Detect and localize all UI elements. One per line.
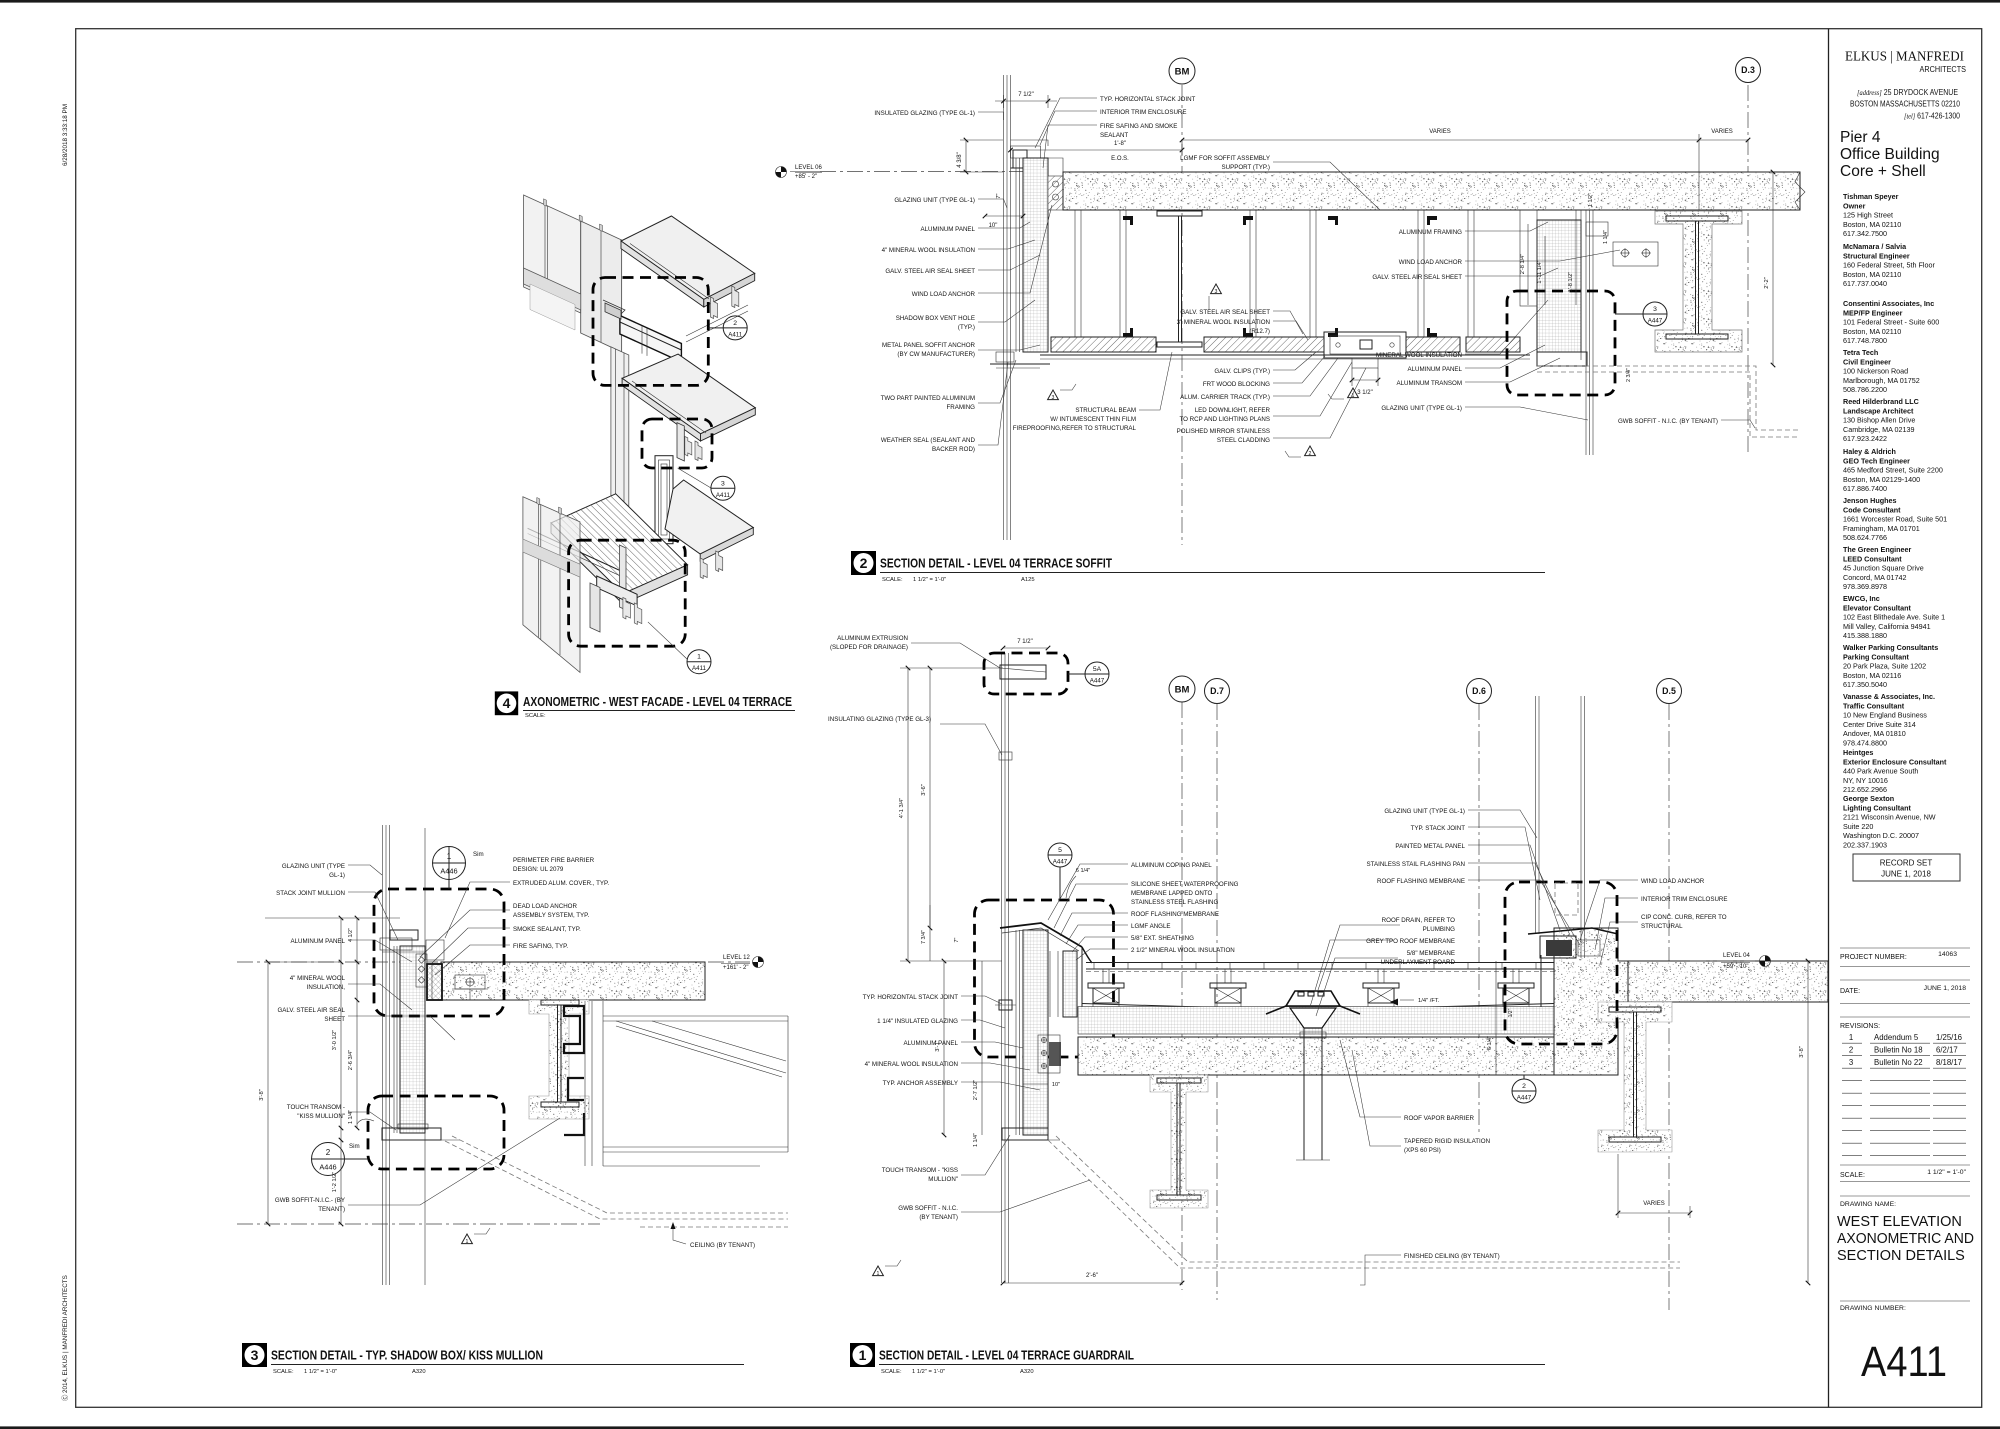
svg-text:George Sexton: George Sexton bbox=[1843, 794, 1894, 803]
svg-text:Bulletin No 22: Bulletin No 22 bbox=[1874, 1058, 1923, 1067]
svg-text:SEALANT: SEALANT bbox=[1100, 132, 1128, 139]
svg-text:3'-6": 3'-6" bbox=[921, 784, 927, 796]
svg-text:Boston, MA 02129-1400: Boston, MA 02129-1400 bbox=[1843, 475, 1920, 484]
svg-text:Suite 220: Suite 220 bbox=[1843, 822, 1873, 831]
svg-text:ELKUS | MANFREDI: ELKUS | MANFREDI bbox=[1845, 49, 1964, 64]
svg-text:SILICONE SHEET WATERPROOFING: SILICONE SHEET WATERPROOFING bbox=[1131, 881, 1239, 888]
svg-text:Elevator Consultant: Elevator Consultant bbox=[1843, 603, 1911, 612]
svg-text:440 Park Avenue South: 440 Park Avenue South bbox=[1843, 767, 1918, 776]
svg-text:Boston, MA 02110: Boston, MA 02110 bbox=[1843, 220, 1901, 229]
svg-text:Pier 4: Pier 4 bbox=[1840, 129, 1881, 146]
svg-text:1/4" /FT.: 1/4" /FT. bbox=[1418, 998, 1440, 1004]
svg-text:PERIMETER FIRE BARRIER: PERIMETER FIRE BARRIER bbox=[513, 857, 595, 864]
svg-text:Boston, MA 02110: Boston, MA 02110 bbox=[1843, 327, 1901, 336]
svg-text:GLAZING UNIT (TYPE GL-1): GLAZING UNIT (TYPE GL-1) bbox=[1384, 808, 1465, 815]
svg-text:978.474.8800: 978.474.8800 bbox=[1843, 739, 1887, 748]
svg-text:CEILING (BY TENANT): CEILING (BY TENANT) bbox=[690, 1242, 755, 1249]
svg-text:A320: A320 bbox=[1020, 1369, 1034, 1375]
svg-text:TO RCP AND LIGHTING PLANS: TO RCP AND LIGHTING PLANS bbox=[1179, 416, 1270, 423]
svg-text:FIRE SAFING, TYP.: FIRE SAFING, TYP. bbox=[513, 943, 568, 950]
svg-text:ROOF DRAIN, REFER TO: ROOF DRAIN, REFER TO bbox=[1382, 917, 1456, 924]
svg-text:VARIES: VARIES bbox=[1643, 1201, 1665, 1207]
svg-text:Sim: Sim bbox=[349, 1143, 360, 1150]
svg-text:LEVEL 12: LEVEL 12 bbox=[723, 955, 750, 961]
svg-text:6 1/4": 6 1/4" bbox=[1076, 868, 1090, 874]
svg-text:3'-8": 3'-8" bbox=[1799, 1046, 1805, 1058]
svg-text:RECORD SET: RECORD SET bbox=[1880, 859, 1933, 868]
svg-text:1661 Worcester Road, Suite 501: 1661 Worcester Road, Suite 501 bbox=[1843, 515, 1947, 524]
svg-text:2: 2 bbox=[1522, 1083, 1526, 1090]
svg-text:617.350.5040: 617.350.5040 bbox=[1843, 680, 1887, 689]
svg-text:SUPPORT (TYP.): SUPPORT (TYP.) bbox=[1222, 164, 1270, 171]
svg-text:125 High Street: 125 High Street bbox=[1843, 211, 1893, 220]
svg-text:1 1/2" = 1'-0": 1 1/2" = 1'-0" bbox=[1927, 1169, 1966, 1176]
svg-text:2'-8 1/4": 2'-8 1/4" bbox=[1520, 254, 1526, 274]
svg-text:7": 7" bbox=[954, 937, 960, 942]
svg-text:1 1/2" = 1'-0": 1 1/2" = 1'-0" bbox=[304, 1369, 337, 1375]
svg-text:3'-8": 3'-8" bbox=[259, 1089, 265, 1101]
svg-text:Heintges: Heintges bbox=[1843, 748, 1873, 757]
svg-text:1'-8": 1'-8" bbox=[1114, 141, 1126, 147]
svg-text:202.337.1903: 202.337.1903 bbox=[1843, 841, 1887, 850]
svg-text:(SLOPED FOR DRAINAGE): (SLOPED FOR DRAINAGE) bbox=[830, 644, 908, 651]
svg-text:FRAMING: FRAMING bbox=[946, 404, 975, 411]
svg-text:ALUMINUM COPING PANEL: ALUMINUM COPING PANEL bbox=[1131, 862, 1212, 869]
svg-text:1'-11 1/4": 1'-11 1/4" bbox=[1537, 260, 1543, 283]
svg-text:ALUMINUM PANEL: ALUMINUM PANEL bbox=[903, 1040, 958, 1047]
svg-text:STRUCTURAL BEAM: STRUCTURAL BEAM bbox=[1075, 407, 1136, 414]
svg-text:[address] 25 DRYDOCK AVENUE: [address] 25 DRYDOCK AVENUE bbox=[1857, 88, 1958, 97]
svg-text:Concord, MA 01742: Concord, MA 01742 bbox=[1843, 573, 1907, 582]
svg-text:160 Federal Street, 5th Floor: 160 Federal Street, 5th Floor bbox=[1843, 261, 1935, 270]
svg-text:4'-1 3/4": 4'-1 3/4" bbox=[899, 798, 905, 818]
svg-text:TAPERED RIGID INSULATION: TAPERED RIGID INSULATION bbox=[1404, 1138, 1490, 1145]
svg-text:"KISS MULLION": "KISS MULLION" bbox=[297, 1113, 345, 1120]
svg-text:3: 3 bbox=[1052, 395, 1055, 401]
svg-text:INSULATION,: INSULATION, bbox=[307, 984, 346, 991]
svg-text:SCALE:: SCALE: bbox=[1840, 1172, 1865, 1179]
svg-text:A446: A446 bbox=[319, 1163, 336, 1172]
svg-text:1: 1 bbox=[466, 1239, 469, 1245]
svg-text:2'-7 1/2": 2'-7 1/2" bbox=[973, 1080, 979, 1100]
svg-text:102 East Blithedale Ave. Suite: 102 East Blithedale Ave. Suite 1 bbox=[1843, 613, 1945, 622]
svg-text:PROJECT NUMBER:: PROJECT NUMBER: bbox=[1840, 954, 1907, 961]
svg-text:2 1/2" MINERAL WOOL INSULATION: 2 1/2" MINERAL WOOL INSULATION bbox=[1131, 947, 1235, 954]
svg-text:3 1/2": 3 1/2" bbox=[1357, 390, 1372, 396]
svg-text:1/2": 1/2" bbox=[1508, 1008, 1514, 1017]
svg-text:ASSEMBLY SYSTEM, TYP.: ASSEMBLY SYSTEM, TYP. bbox=[513, 912, 590, 919]
svg-text:WIND LOAD ANCHOR: WIND LOAD ANCHOR bbox=[1399, 259, 1463, 266]
svg-text:FRT WOOD BLOCKING: FRT WOOD BLOCKING bbox=[1203, 381, 1270, 388]
svg-text:SECTION DETAIL - LEVEL 04 TERR: SECTION DETAIL - LEVEL 04 TERRACE SOFFIT bbox=[880, 556, 1112, 571]
svg-text:A411: A411 bbox=[716, 492, 731, 499]
svg-text:LEED Consultant: LEED Consultant bbox=[1843, 554, 1902, 563]
svg-text:415.388.1880: 415.388.1880 bbox=[1843, 631, 1887, 640]
svg-text:ALUMINUM FRAMING: ALUMINUM FRAMING bbox=[1399, 229, 1462, 236]
svg-text:TYP. ANCHOR ASSEMBLY: TYP. ANCHOR ASSEMBLY bbox=[883, 1080, 958, 1087]
svg-text:+59' - 10": +59' - 10" bbox=[1723, 964, 1748, 970]
svg-text:TYP. STACK JOINT: TYP. STACK JOINT bbox=[1411, 825, 1466, 832]
svg-text:A447: A447 bbox=[1517, 1095, 1532, 1102]
svg-text:SECTION DETAIL - LEVEL 04 TERR: SECTION DETAIL - LEVEL 04 TERRACE GUARDR… bbox=[879, 1348, 1134, 1363]
svg-text:GALV. CLIPS (TYP.): GALV. CLIPS (TYP.) bbox=[1214, 368, 1270, 375]
svg-text:3: 3 bbox=[251, 1347, 259, 1363]
svg-text:Office Building: Office Building bbox=[1840, 146, 1940, 163]
svg-text:Landscape Architect: Landscape Architect bbox=[1843, 406, 1914, 415]
svg-text:Structural Engineer: Structural Engineer bbox=[1843, 251, 1910, 260]
svg-text:GEO Tech Engineer: GEO Tech Engineer bbox=[1843, 456, 1910, 465]
svg-text:TYP. HORIZONTAL STACK JOINT: TYP. HORIZONTAL STACK JOINT bbox=[1100, 96, 1196, 103]
svg-text:GALV. STEEL AIR SEAL: GALV. STEEL AIR SEAL bbox=[277, 1007, 345, 1014]
svg-text:SMOKE SEALANT, TYP.: SMOKE SEALANT, TYP. bbox=[513, 926, 581, 933]
svg-text:INSULATED GLAZING (TYPE GL-1): INSULATED GLAZING (TYPE GL-1) bbox=[874, 110, 975, 117]
svg-text:GLAZING UNIT (TYPE GL-1): GLAZING UNIT (TYPE GL-1) bbox=[894, 197, 975, 204]
svg-text:ALUMINUM TRANSOM: ALUMINUM TRANSOM bbox=[1396, 380, 1462, 387]
svg-text:Andover, MA 01810: Andover, MA 01810 bbox=[1843, 729, 1906, 738]
svg-text:978.369.8978: 978.369.8978 bbox=[1843, 582, 1887, 591]
svg-text:FIRE SAFING AND SMOKE: FIRE SAFING AND SMOKE bbox=[1100, 123, 1177, 130]
svg-text:TWO PART PAINTED ALUMINUM: TWO PART PAINTED ALUMINUM bbox=[881, 395, 975, 402]
svg-text:BOSTON MASSACHUSETTS 02210: BOSTON MASSACHUSETTS 02210 bbox=[1850, 100, 1961, 109]
svg-text:Parking Consultant: Parking Consultant bbox=[1843, 652, 1909, 661]
svg-text:ALUM. CARRIER TRACK (TYP.): ALUM. CARRIER TRACK (TYP.) bbox=[1180, 394, 1270, 401]
svg-text:MULLION": MULLION" bbox=[928, 1176, 958, 1183]
svg-text:5: 5 bbox=[1058, 847, 1062, 854]
svg-text:TYP. HORIZONTAL STACK JOINT: TYP. HORIZONTAL STACK JOINT bbox=[863, 994, 959, 1001]
svg-text:+161' - 2": +161' - 2" bbox=[723, 965, 748, 971]
svg-text:[tel] 617-426-1300: [tel] 617-426-1300 bbox=[1904, 111, 1961, 120]
svg-text:(XPS 60 PSI): (XPS 60 PSI) bbox=[1404, 1147, 1441, 1154]
svg-text:2: 2 bbox=[1849, 1046, 1853, 1055]
svg-text:3" MINERAL WOOL INSULATION: 3" MINERAL WOOL INSULATION bbox=[1177, 319, 1270, 326]
svg-text:PAINTED METAL PANEL: PAINTED METAL PANEL bbox=[1395, 843, 1465, 850]
svg-text:A125: A125 bbox=[1021, 577, 1035, 583]
svg-text:D.3: D.3 bbox=[1741, 65, 1755, 75]
svg-text:465 Medford Street, Suite 2200: 465 Medford Street, Suite 2200 bbox=[1843, 466, 1943, 475]
svg-text:1'-8 1/2": 1'-8 1/2" bbox=[1568, 272, 1574, 292]
svg-text:D.5: D.5 bbox=[1662, 686, 1676, 696]
svg-text:SCALE:: SCALE: bbox=[881, 1369, 902, 1375]
svg-text:2: 2 bbox=[733, 320, 737, 327]
svg-text:ALUMINUM EXTRUSION: ALUMINUM EXTRUSION bbox=[837, 635, 908, 642]
svg-text:JUNE 1, 2018: JUNE 1, 2018 bbox=[1881, 870, 1931, 879]
svg-text:LGMF ANGLE: LGMF ANGLE bbox=[1131, 923, 1171, 930]
svg-text:D.7: D.7 bbox=[1210, 686, 1224, 696]
svg-text:The Green Engineer: The Green Engineer bbox=[1843, 545, 1912, 554]
svg-text:FINISHED CEILING (BY TENANT): FINISHED CEILING (BY TENANT) bbox=[1404, 1253, 1500, 1260]
svg-text:D.6: D.6 bbox=[1472, 686, 1486, 696]
svg-text:DATE:: DATE: bbox=[1840, 988, 1860, 995]
svg-text:4" MINERAL WOOL: 4" MINERAL WOOL bbox=[290, 975, 346, 982]
svg-text:617.886.7400: 617.886.7400 bbox=[1843, 484, 1887, 493]
svg-text:GLAZING UNIT (TYPE GL-1): GLAZING UNIT (TYPE GL-1) bbox=[1381, 405, 1462, 412]
svg-text:2: 2 bbox=[1309, 451, 1312, 457]
svg-text:NY, NY 10016: NY, NY 10016 bbox=[1843, 776, 1888, 785]
svg-text:Washington D.C. 20007: Washington D.C. 20007 bbox=[1843, 831, 1919, 840]
svg-text:A447: A447 bbox=[1648, 318, 1663, 325]
svg-text:A446: A446 bbox=[440, 867, 457, 876]
svg-text:TENANT): TENANT) bbox=[318, 1206, 345, 1213]
svg-text:ALUMINUM PANEL: ALUMINUM PANEL bbox=[1407, 366, 1462, 373]
svg-text:3: 3 bbox=[1653, 306, 1657, 313]
svg-text:(R12.7): (R12.7) bbox=[1249, 328, 1270, 335]
svg-text:45 Junction Square Drive: 45 Junction Square Drive bbox=[1843, 564, 1924, 573]
svg-text:UNDERLAYMENT BOARD: UNDERLAYMENT BOARD bbox=[1381, 959, 1456, 966]
svg-text:7 1/2": 7 1/2" bbox=[1017, 639, 1032, 645]
svg-text:DRAWING NUMBER:: DRAWING NUMBER: bbox=[1840, 1305, 1906, 1312]
svg-text:Tishman Speyer: Tishman Speyer bbox=[1843, 192, 1899, 201]
svg-text:E.O.S.: E.O.S. bbox=[1111, 156, 1129, 162]
svg-text:DESIGN: UL 2079: DESIGN: UL 2079 bbox=[513, 866, 564, 873]
svg-text:DEAD LOAD ANCHOR: DEAD LOAD ANCHOR bbox=[513, 903, 577, 910]
svg-text:Cambridge, MA 02139: Cambridge, MA 02139 bbox=[1843, 425, 1915, 434]
svg-text:1 1/4" INSULATED GLAZING: 1 1/4" INSULATED GLAZING bbox=[877, 1018, 958, 1025]
svg-text:EWCG, Inc: EWCG, Inc bbox=[1843, 594, 1880, 603]
svg-text:A320: A320 bbox=[412, 1369, 426, 1375]
svg-text:5/8" EXT. SHEATHING: 5/8" EXT. SHEATHING bbox=[1131, 935, 1194, 942]
svg-text:GALV. STEEL AIR SEAL SHEET: GALV. STEEL AIR SEAL SHEET bbox=[1180, 309, 1270, 316]
svg-text:McNamara / Salvia: McNamara / Salvia bbox=[1843, 242, 1907, 251]
svg-text:4 3/8": 4 3/8" bbox=[957, 152, 963, 167]
svg-text:SCALE:: SCALE: bbox=[525, 713, 546, 719]
svg-text:1/25/16: 1/25/16 bbox=[1936, 1033, 1962, 1042]
svg-text:Owner: Owner bbox=[1843, 201, 1866, 210]
svg-text:GWB SOFFIT - N.I.C.: GWB SOFFIT - N.I.C. bbox=[898, 1205, 958, 1212]
svg-text:7 3/4": 7 3/4" bbox=[921, 930, 927, 944]
svg-text:A411: A411 bbox=[692, 665, 707, 672]
svg-text:20 Park Plaza, Suite 1202: 20 Park Plaza, Suite 1202 bbox=[1843, 662, 1926, 671]
svg-text:(BY CW MANUFACTURER): (BY CW MANUFACTURER) bbox=[897, 351, 975, 358]
svg-text:Addendum 5: Addendum 5 bbox=[1874, 1033, 1919, 1042]
svg-text:1'-2 1/2": 1'-2 1/2" bbox=[332, 1172, 338, 1192]
svg-text:MINERAL WOOL INSULATION: MINERAL WOOL INSULATION bbox=[1376, 352, 1462, 359]
svg-text:6/28/2018 3:33:18 PM: 6/28/2018 3:33:18 PM bbox=[62, 104, 69, 166]
svg-text:617.748.7800: 617.748.7800 bbox=[1843, 336, 1887, 345]
svg-text:4" MINERAL WOOL INSULATION: 4" MINERAL WOOL INSULATION bbox=[882, 247, 975, 254]
svg-text:GWB SOFFIT-N.I.C.- (BY: GWB SOFFIT-N.I.C.- (BY bbox=[275, 1197, 345, 1204]
svg-text:Bulletin No 18: Bulletin No 18 bbox=[1874, 1046, 1923, 1055]
svg-text:3: 3 bbox=[1849, 1058, 1853, 1067]
svg-text:(BY TENANT): (BY TENANT) bbox=[919, 1214, 958, 1221]
svg-text:MEMBRANE LAPPED ONTO: MEMBRANE LAPPED ONTO bbox=[1131, 890, 1213, 897]
svg-text:5A: 5A bbox=[1093, 666, 1102, 673]
svg-text:2'-6": 2'-6" bbox=[1086, 1273, 1098, 1279]
svg-text:Tetra Tech: Tetra Tech bbox=[1843, 348, 1878, 357]
svg-text:Center Drive Suite 314: Center Drive Suite 314 bbox=[1843, 720, 1916, 729]
svg-text:7": 7" bbox=[996, 193, 1002, 198]
svg-text:ROOF VAPOR BARRIER: ROOF VAPOR BARRIER bbox=[1404, 1115, 1475, 1122]
svg-text:Code Consultant: Code Consultant bbox=[1843, 505, 1901, 514]
svg-text:8/18/17: 8/18/17 bbox=[1936, 1058, 1962, 1067]
svg-text:Boston, MA 02116: Boston, MA 02116 bbox=[1843, 671, 1901, 680]
svg-text:TOUCH TRANSOM - "KISS: TOUCH TRANSOM - "KISS bbox=[882, 1167, 958, 1174]
svg-text:VARIES: VARIES bbox=[1429, 129, 1451, 135]
svg-text:130 Bishop Allen Drive: 130 Bishop Allen Drive bbox=[1843, 416, 1915, 425]
svg-text:STACK JOINT MULLION: STACK JOINT MULLION bbox=[276, 890, 345, 897]
svg-text:ALUMINUM PANEL: ALUMINUM PANEL bbox=[290, 938, 345, 945]
svg-text:Reed Hilderbrand LLC: Reed Hilderbrand LLC bbox=[1843, 397, 1919, 406]
svg-text:A447: A447 bbox=[1053, 859, 1068, 866]
svg-text:WIND LOAD ANCHOR: WIND LOAD ANCHOR bbox=[1641, 878, 1705, 885]
svg-text:WIND LOAD ANCHOR: WIND LOAD ANCHOR bbox=[912, 291, 976, 298]
svg-text:INTERIOR TRIM ENCLOSURE: INTERIOR TRIM ENCLOSURE bbox=[1641, 896, 1728, 903]
svg-text:Lighting Consultant: Lighting Consultant bbox=[1843, 803, 1911, 812]
svg-text:ROOF FLASHING MEMBRANE: ROOF FLASHING MEMBRANE bbox=[1377, 878, 1465, 885]
svg-text:DRAWING NAME:: DRAWING NAME: bbox=[1840, 1201, 1896, 1208]
svg-text:Mill Valley, California 94941: Mill Valley, California 94941 bbox=[1843, 622, 1931, 631]
svg-text:1: 1 bbox=[697, 654, 701, 661]
svg-text:STRUCTURAL: STRUCTURAL bbox=[1641, 923, 1683, 930]
svg-text:REVISIONS:: REVISIONS: bbox=[1840, 1023, 1880, 1030]
svg-text:SECTION DETAIL - TYP. SHADOW B: SECTION DETAIL - TYP. SHADOW BOX/ KISS M… bbox=[271, 1348, 543, 1363]
svg-text:AXONOMETRIC - WEST FACADE - LE: AXONOMETRIC - WEST FACADE - LEVEL 04 TER… bbox=[523, 694, 792, 709]
svg-text:1 1/4": 1 1/4" bbox=[1603, 230, 1609, 244]
svg-text:METAL PANEL SOFFIT ANCHOR: METAL PANEL SOFFIT ANCHOR bbox=[882, 342, 976, 349]
svg-text:4" MINERAL WOOL INSULATION: 4" MINERAL WOOL INSULATION bbox=[865, 1061, 958, 1068]
svg-text:2'-2": 2'-2" bbox=[1764, 277, 1770, 289]
svg-text:GLAZING UNIT (TYPE: GLAZING UNIT (TYPE bbox=[282, 863, 345, 870]
svg-text:Traffic Consultant: Traffic Consultant bbox=[1843, 701, 1905, 710]
svg-text:Exterior Enclosure Consultant: Exterior Enclosure Consultant bbox=[1843, 757, 1947, 766]
svg-text:STEEL CLADDING: STEEL CLADDING bbox=[1217, 437, 1270, 444]
svg-text:Consentini Associates, Inc: Consentini Associates, Inc bbox=[1843, 299, 1934, 308]
svg-text:1 1/4": 1 1/4" bbox=[973, 1133, 979, 1147]
svg-text:STAINLESS STAIL FLASHING PAN: STAINLESS STAIL FLASHING PAN bbox=[1367, 861, 1465, 868]
svg-text:Framingham, MA 01701: Framingham, MA 01701 bbox=[1843, 524, 1920, 533]
svg-text:A411: A411 bbox=[728, 331, 743, 338]
svg-text:JUNE 1, 2018: JUNE 1, 2018 bbox=[1924, 985, 1967, 992]
svg-text:3: 3 bbox=[721, 480, 725, 487]
svg-text:BM: BM bbox=[1175, 66, 1190, 77]
svg-text:1 1/2" = 1'-0": 1 1/2" = 1'-0" bbox=[913, 577, 946, 583]
svg-text:1: 1 bbox=[447, 852, 452, 861]
svg-text:PLUMBING: PLUMBING bbox=[1423, 926, 1456, 933]
svg-text:10": 10" bbox=[1052, 1082, 1060, 1088]
svg-text:Boston, MA 02110: Boston, MA 02110 bbox=[1843, 270, 1901, 279]
svg-text:POLISHED MIRROR STAINLESS: POLISHED MIRROR STAINLESS bbox=[1177, 428, 1270, 435]
svg-text:TOUCH TRANSOM -: TOUCH TRANSOM - bbox=[287, 1104, 345, 1111]
svg-text:Walker Parking Consultants: Walker Parking Consultants bbox=[1843, 643, 1938, 652]
svg-text:AXONOMETRIC AND: AXONOMETRIC AND bbox=[1837, 1231, 1974, 1247]
svg-text:A411: A411 bbox=[1861, 1338, 1947, 1386]
svg-text:212.652.2966: 212.652.2966 bbox=[1843, 785, 1887, 794]
svg-text:LED DOWNLIGHT, REFER: LED DOWNLIGHT, REFER bbox=[1195, 407, 1271, 414]
svg-text:BM: BM bbox=[1175, 684, 1190, 695]
svg-text:508.786.2200: 508.786.2200 bbox=[1843, 385, 1887, 394]
svg-text:Sim: Sim bbox=[473, 851, 484, 858]
svg-text:2: 2 bbox=[326, 1148, 331, 1157]
svg-text:LEVEL 04: LEVEL 04 bbox=[1723, 953, 1750, 959]
svg-text:Civil Engineer: Civil Engineer bbox=[1843, 357, 1891, 366]
svg-text:SECTION DETAILS: SECTION DETAILS bbox=[1837, 1248, 1965, 1264]
svg-text:Core + Shell: Core + Shell bbox=[1840, 163, 1926, 180]
svg-text:EXTRUDED ALUM. COVER., TYP.: EXTRUDED ALUM. COVER., TYP. bbox=[513, 880, 609, 887]
svg-text:INSULATING GLAZING (TYPE GL-3): INSULATING GLAZING (TYPE GL-3) bbox=[828, 716, 931, 723]
svg-text:SCALE:: SCALE: bbox=[273, 1369, 294, 1375]
svg-text:ROOF FLASHING MEMBRANE: ROOF FLASHING MEMBRANE bbox=[1131, 911, 1219, 918]
svg-text:7 1/2": 7 1/2" bbox=[1018, 92, 1033, 98]
svg-text:1: 1 bbox=[859, 1347, 867, 1363]
svg-text:VARIES: VARIES bbox=[1711, 129, 1733, 135]
svg-text:508.624.7766: 508.624.7766 bbox=[1843, 533, 1887, 542]
svg-text:1: 1 bbox=[877, 1271, 880, 1277]
svg-text:WEST ELEVATION: WEST ELEVATION bbox=[1837, 1214, 1962, 1230]
svg-text:2121 Wisconsin Avenue, NW: 2121 Wisconsin Avenue, NW bbox=[1843, 813, 1936, 822]
svg-text:GL-1): GL-1) bbox=[329, 872, 345, 879]
svg-text:Vanasse & Associates, Inc.: Vanasse & Associates, Inc. bbox=[1843, 692, 1935, 701]
svg-text:617.923.2422: 617.923.2422 bbox=[1843, 434, 1887, 443]
svg-text:6 1/4": 6 1/4" bbox=[1487, 1036, 1493, 1050]
svg-text:617.342.7500: 617.342.7500 bbox=[1843, 229, 1887, 238]
svg-text:3'-0 1/2": 3'-0 1/2" bbox=[332, 1030, 338, 1050]
svg-text:1 1/2": 1 1/2" bbox=[1588, 193, 1594, 207]
svg-text:Haley & Aldrich: Haley & Aldrich bbox=[1843, 447, 1896, 456]
svg-text:2: 2 bbox=[860, 555, 868, 571]
svg-text:FIREPROOFING,REFER TO STRUCTUR: FIREPROOFING,REFER TO STRUCTURAL bbox=[1013, 425, 1137, 432]
svg-text:BACKER ROD): BACKER ROD) bbox=[932, 446, 975, 453]
svg-text:10 New England Business: 10 New England Business bbox=[1843, 711, 1927, 720]
svg-text:100 Nickerson Road: 100 Nickerson Road bbox=[1843, 367, 1908, 376]
svg-text:SCALE:: SCALE: bbox=[882, 577, 903, 583]
svg-text:INTERIOR TRIM ENCLOSURE: INTERIOR TRIM ENCLOSURE bbox=[1100, 109, 1187, 116]
svg-text:+85' - 2": +85' - 2" bbox=[795, 174, 817, 180]
svg-text:LEVEL 06: LEVEL 06 bbox=[795, 165, 822, 171]
svg-text:GALV. STEEL AIR SEAL SHEET: GALV. STEEL AIR SEAL SHEET bbox=[885, 268, 975, 275]
svg-text:(TYP.): (TYP.) bbox=[958, 324, 975, 331]
svg-text:Marlborough, MA 01752: Marlborough, MA 01752 bbox=[1843, 376, 1920, 385]
svg-text:14063: 14063 bbox=[1938, 951, 1957, 958]
svg-text:101 Federal Street - Suite 60: 101 Federal Street - Suite 600 bbox=[1843, 318, 1939, 327]
svg-text:A447: A447 bbox=[1090, 678, 1105, 685]
svg-text:Ⓒ 2014, ELKUS | MANFREDI ARCHI: Ⓒ 2014, ELKUS | MANFREDI ARCHITECTS bbox=[61, 1275, 69, 1401]
svg-text:GALV. STEEL AIR SEAL SHEET: GALV. STEEL AIR SEAL SHEET bbox=[1372, 274, 1462, 281]
svg-text:617.737.0040: 617.737.0040 bbox=[1843, 279, 1887, 288]
svg-text:2 3/4": 2 3/4" bbox=[1626, 368, 1632, 382]
svg-text:2'-6 3/4": 2'-6 3/4" bbox=[348, 1050, 354, 1070]
svg-text:5/8" MEMBRANE: 5/8" MEMBRANE bbox=[1407, 950, 1455, 957]
svg-text:6/2/17: 6/2/17 bbox=[1936, 1046, 1958, 1055]
svg-text:MEP/FP Engineer: MEP/FP Engineer bbox=[1843, 308, 1903, 317]
svg-text:3: 3 bbox=[1215, 289, 1218, 295]
svg-text:GREY TPO ROOF MEMBRANE: GREY TPO ROOF MEMBRANE bbox=[1366, 938, 1455, 945]
svg-text:CIP CONC. CURB, REFER TO: CIP CONC. CURB, REFER TO bbox=[1641, 914, 1727, 921]
svg-text:SHADOW BOX VENT HOLE: SHADOW BOX VENT HOLE bbox=[896, 315, 975, 322]
svg-text:1: 1 bbox=[1352, 393, 1355, 399]
svg-text:ALUMINUM PANEL: ALUMINUM PANEL bbox=[920, 226, 975, 233]
svg-text:Jenson Hughes: Jenson Hughes bbox=[1843, 496, 1897, 505]
svg-text:GWB SOFFIT - N.I.C. (BY TENANT: GWB SOFFIT - N.I.C. (BY TENANT) bbox=[1618, 418, 1718, 425]
svg-text:STAINLESS STEEL FLASHING: STAINLESS STEEL FLASHING bbox=[1131, 899, 1219, 906]
svg-text:WEATHER SEAL (SEALANT AND: WEATHER SEAL (SEALANT AND bbox=[881, 437, 976, 444]
svg-text:SHEET: SHEET bbox=[324, 1016, 345, 1023]
svg-text:W/ INTUMESCENT THIN FILM: W/ INTUMESCENT THIN FILM bbox=[1050, 416, 1136, 423]
svg-text:LGMF FOR SOFFIT ASSEMBLY: LGMF FOR SOFFIT ASSEMBLY bbox=[1180, 155, 1270, 162]
svg-text:4: 4 bbox=[503, 695, 511, 711]
svg-text:1: 1 bbox=[1849, 1033, 1853, 1042]
svg-text:ARCHITECTS: ARCHITECTS bbox=[1920, 64, 1967, 74]
svg-text:1 1/2" = 1'-0": 1 1/2" = 1'-0" bbox=[912, 1369, 945, 1375]
